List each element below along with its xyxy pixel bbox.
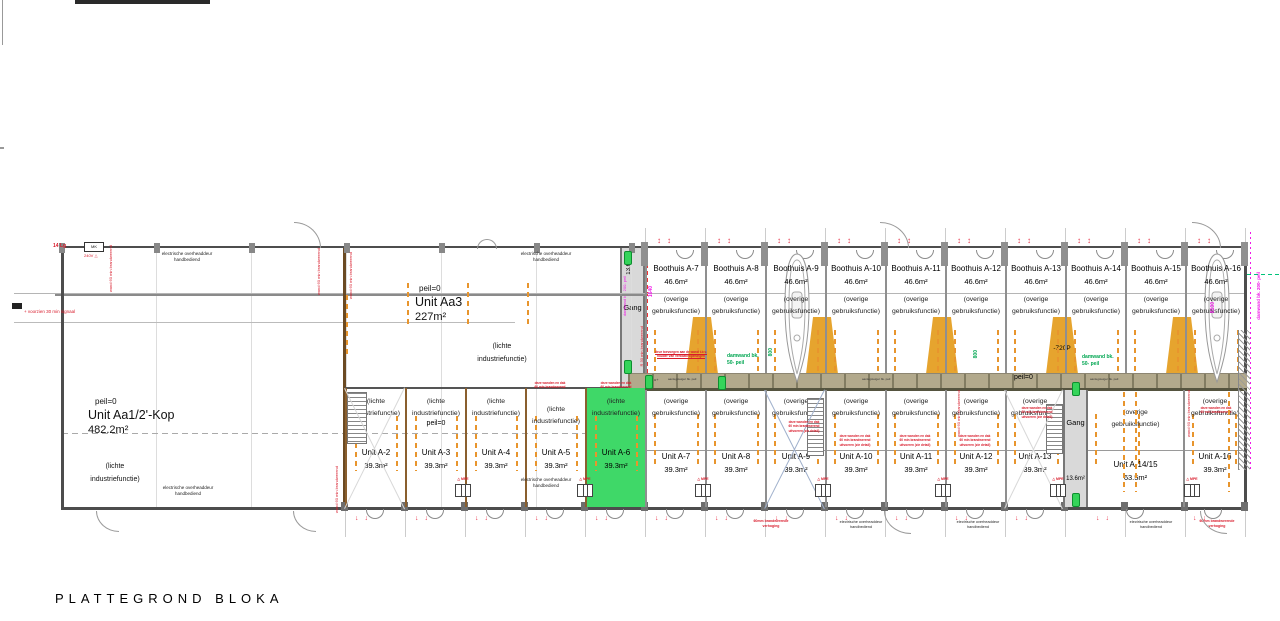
exit-marker — [624, 360, 632, 374]
unit-area: 46.6m² — [827, 277, 885, 286]
door-label-line: handbediend — [1128, 525, 1174, 530]
meter-cabinet-box: MK — [84, 242, 104, 252]
mk-label: MK — [91, 244, 97, 249]
door-swing-arc — [477, 239, 497, 249]
aa3-peil-label: peil=0 — [419, 284, 441, 293]
unit-name: Unit A-11 — [887, 452, 945, 461]
aa3-unit-name: Unit Aa3 — [415, 295, 462, 309]
door-arc-icon — [1096, 250, 1114, 259]
unit-name: Boothuis A-12 — [947, 264, 1005, 273]
aa3-function: (lichte industriefunctie) — [448, 340, 556, 366]
function-line: gebruiksfunctie) — [1007, 306, 1065, 318]
voltage-note: 240V △ — [84, 253, 98, 258]
signal-note: + voorzien 30 min signaal — [24, 309, 75, 314]
unit-function: (overigegebruiksfunctie) — [1067, 294, 1125, 318]
corridor-gang-2: Gang 13.6m² — [1063, 390, 1088, 507]
boathouse-a9: Boothuis A-9 46.6m² (overigegebruiksfunc… — [765, 250, 825, 373]
meter-box — [815, 484, 831, 497]
function-line: gebruiksfunctie) — [647, 408, 705, 420]
fire-wall-note: wand 60 min brandwerend — [348, 252, 353, 299]
damwand-50-note: damwand bk. 50- peil — [727, 353, 759, 367]
overhead-door-label: electrische overheaddeur handbediend — [155, 251, 219, 264]
boathouse-a11: Boothuis A-11 46.6m² (overigegebruiksfun… — [885, 250, 945, 373]
function-line: gebruiksfunctie) — [827, 408, 885, 420]
dim-800: 800 — [973, 350, 979, 358]
door-label-line: handbediend — [955, 525, 1001, 530]
unit-a10: (overigegebruiksfunctie) Unit A-10 39.3m… — [825, 390, 885, 507]
note-line: uitvoeren (zie detail) — [835, 443, 875, 447]
note-line: damwand bk. — [727, 353, 759, 360]
function-line: gebruiksfunctie) — [767, 306, 825, 318]
fire-wall-note: wand 60 min brandwerend — [956, 390, 961, 437]
note-line: 60 min brandwerend — [522, 385, 578, 389]
unit-area: 39.3m² — [767, 465, 825, 474]
mpe-label: △ MPE — [690, 477, 716, 481]
quay-peil-label: peil=0 — [1014, 374, 1033, 381]
unit-function: (overigegebruiksfunctie) — [767, 294, 825, 318]
mpe-label: △ MPE — [810, 477, 836, 481]
exit-marker — [1072, 382, 1080, 396]
unit-function: (overigegebruiksfunctie) — [887, 294, 945, 318]
unit-function: (overigegebruiksfunctie) — [707, 294, 765, 318]
function-line: (overige — [1067, 294, 1125, 306]
unit-name: Boothuis A-15 — [1127, 264, 1185, 273]
unit-name: Boothuis A-9 — [767, 264, 825, 273]
unit-name: Boothuis A-11 — [887, 264, 945, 273]
unit-function: (overigegebruiksfunctie) — [1127, 294, 1185, 318]
unit-function: (lichteindustriefunctie) — [407, 396, 465, 420]
unit-area: 46.6m² — [767, 277, 825, 286]
note-line: 60 min brandwerend — [955, 438, 995, 442]
meter-box — [455, 484, 471, 497]
meter-box — [577, 484, 593, 497]
door-label-line: handbediend — [155, 257, 219, 263]
function-line: (lichte — [587, 396, 645, 408]
function-line: gebruiksfunctie) — [707, 408, 765, 420]
overhead-door-label-below: electrische overheaddeur handbediend — [838, 520, 884, 530]
boat-dim-8100: 8100 — [1210, 302, 1216, 313]
exit-marker — [1072, 493, 1080, 507]
door-arc-icon — [856, 250, 874, 259]
note-line: uitvoeren (zie detail) — [786, 429, 822, 433]
damwand-50-note: damwand bk. 50- peil — [1082, 354, 1114, 368]
overhead-door-label: electrische overheaddeur handbediend — [156, 485, 220, 498]
function-line: gebruiksfunctie) — [827, 306, 885, 318]
dim-1640: 1640 — [648, 286, 654, 297]
door-marker — [467, 283, 469, 328]
unit-function: (overigegebruiksfunctie) — [1187, 294, 1245, 318]
mpe-label: △ MPE — [930, 477, 956, 481]
meter-box — [1184, 484, 1200, 497]
function-line: gebruiksfunctie) — [707, 306, 765, 318]
door-label-line: handbediend — [514, 257, 578, 263]
function-line: (lichte — [448, 340, 556, 353]
note-line: 50- peil — [1082, 361, 1114, 368]
deck-label: aanlegsteiger bk. peil — [668, 377, 696, 381]
fire-note-block: deze wanden en dak 60 min brandwerend ui… — [786, 420, 822, 433]
unit-area: 39.3m² — [347, 461, 405, 470]
floor-plan: 13.6m² Gang damwand bk. 200- peil R 30 m… — [0, 0, 1280, 621]
function-line: industriefunctie) — [448, 353, 556, 366]
function-line: (overige — [827, 396, 885, 408]
unit-function: (lichteindustriefunctie) — [467, 396, 525, 420]
unit-function: (overigegebruiksfunctie) — [707, 396, 765, 420]
unit-function: (overigegebruiksfunctie) — [1007, 294, 1065, 318]
unit-name: Unit A-10 — [827, 452, 885, 461]
unit-name: Boothuis A-10 — [827, 264, 885, 273]
function-line: industriefunctie) — [467, 408, 525, 420]
unit-function: (lichteindustriefunctie) — [587, 396, 645, 420]
unit-area: 39.3m² — [467, 461, 525, 470]
note-line: uitvoeren (zie detail) — [895, 443, 935, 447]
top-border-artifact — [75, 0, 210, 4]
function-line: gebruiksfunctie) — [887, 408, 945, 420]
door-swing-arc — [294, 222, 321, 248]
left-border-artifact — [2, 0, 3, 45]
kop-unit-area: 482.2m² — [88, 424, 128, 436]
function-line: (lichte — [527, 404, 585, 416]
unit-name: Unit A-8 — [707, 452, 765, 461]
deck-label: aanlegsteiger bk. peil — [862, 377, 890, 381]
overhead-door-label: electrische overheaddeur handbediend — [514, 251, 578, 264]
left-border-tick — [0, 147, 4, 149]
note-line: verhoging — [745, 524, 797, 529]
function-line: (overige — [647, 396, 705, 408]
kop-unit-name: Unit Aa1/2'-Kop — [88, 408, 174, 422]
note-line: 60 min brandwerend — [1018, 410, 1056, 414]
door-label-line: handbediend — [514, 483, 578, 489]
function-line: gebruiksfunctie) — [1187, 306, 1245, 318]
fire-wall-note: wand 60 min brandwerend — [1186, 390, 1191, 437]
dim-800: 800 — [768, 348, 774, 356]
exit-marker — [645, 375, 653, 389]
door-arc-icon — [736, 250, 754, 259]
door-swing-arc — [293, 511, 316, 532]
unit-area: 39.3m² — [1185, 465, 1245, 474]
unit-function: (overigegebruiksfunctie) — [827, 396, 885, 420]
function-line: industriefunctie) — [587, 408, 645, 420]
function-line: (overige — [1127, 294, 1185, 306]
door-label-line: handbediend — [838, 525, 884, 530]
unit-a12: (overigegebruiksfunctie) Unit A-12 39.3m… — [945, 390, 1005, 507]
unit-function: (overigegebruiksfunctie) — [827, 294, 885, 318]
kop-peil-label: peil=0 — [95, 397, 117, 406]
wall-notch — [12, 303, 22, 309]
door-swing-arc — [1192, 222, 1221, 248]
function-line: industriefunctie) — [527, 416, 585, 428]
function-line: (overige — [887, 396, 945, 408]
function-line: (overige — [1187, 294, 1245, 306]
unit-name: Unit A-5 — [527, 448, 585, 457]
unit-area: 46.6m² — [707, 277, 765, 286]
unit-name: Unit A-16 — [1185, 452, 1245, 461]
unit-name: Boothuis A-8 — [707, 264, 765, 273]
door-arc-icon — [916, 250, 934, 259]
unit-name: Unit A-7 — [647, 452, 705, 461]
unit-a8: (overigegebruiksfunctie) Unit A-8 39.3m² — [705, 390, 765, 507]
function-line: (overige — [647, 294, 705, 306]
damwand-200-note: damwand bk. 200- peil — [1256, 272, 1261, 320]
boathouse-a10: Boothuis A-10 46.6m² (overigegebruiksfun… — [825, 250, 885, 373]
function-line: gebruiksfunctie) — [887, 306, 945, 318]
unit-area: 39.3m² — [707, 465, 765, 474]
unit-function: (overigegebruiksfunctie) — [647, 396, 705, 420]
function-line: (overige — [827, 294, 885, 306]
deck-label: aanlegsteiger bk. peil — [1090, 377, 1118, 381]
unit-name: Boothuis A-13 — [1007, 264, 1065, 273]
door-marker — [407, 283, 409, 328]
boathouse-a15: Boothuis A-15 46.6m² (overigegebruiksfun… — [1125, 250, 1185, 373]
function-line: gebruiksfunctie) — [1067, 306, 1125, 318]
aa3-unit-area: 227m² — [415, 311, 446, 323]
unit-area: 46.6m² — [1127, 277, 1185, 286]
function-line: gebruiksfunctie) — [947, 306, 1005, 318]
fire-note-block: deze wanden en dak 60 min brandwerend ui… — [835, 434, 875, 447]
fire-wall-note: wand 60 min brandwerend — [334, 466, 339, 513]
function-line: (lichte — [467, 396, 525, 408]
magenta-dim-line — [1250, 232, 1251, 472]
fire-note-block: deze wanden en dak 60 min brandwerend ui… — [1018, 406, 1056, 419]
unit-area: 39.3m² — [887, 465, 945, 474]
mpe-label: △ MPE — [450, 477, 476, 481]
unit-area: 39.3m² — [947, 465, 1005, 474]
door-arc-icon — [1156, 250, 1174, 259]
unit-name: Unit A-3 — [407, 448, 465, 457]
function-line: (overige — [707, 396, 765, 408]
u-plus-mark: u+ — [654, 377, 659, 382]
unit-area: 46.6m² — [1067, 277, 1125, 286]
unit-function: (lichteindustriefunctie) — [527, 404, 585, 428]
unit-area: 46.6m² — [647, 277, 705, 286]
unit-a6-highlighted: (lichteindustriefunctie) Unit A-6 39.3m² — [585, 388, 645, 507]
note-line: 60 min brandwerend — [1196, 410, 1236, 414]
unit-area: 46.6m² — [887, 277, 945, 286]
door-arc-icon — [1036, 250, 1054, 259]
door-swing-arc — [96, 511, 119, 532]
unit-name: Boothuis A-14 — [1067, 264, 1125, 273]
boathouse-a16: Boothuis A-16 46.6m² (overigegebruiksfun… — [1185, 250, 1245, 373]
fire-wall-note: wand 60 min brandwerend — [108, 245, 113, 292]
note-line: 60 min brandwerend — [835, 438, 875, 442]
unit-name: Boothuis A-7 — [647, 264, 705, 273]
function-line: (lichte — [70, 460, 160, 473]
peil-label: peil=0 — [407, 420, 465, 427]
unit-function: (overigegebruiksfunctie) — [887, 396, 945, 420]
note-line: uitvoeren (zie detail) — [955, 443, 995, 447]
fire-banner: deze wanden en dak 60 min brandwerend — [590, 381, 642, 390]
fire-note-block: deze wanden en dak 60 min brandwerend ui… — [895, 434, 935, 447]
fire-banner: deze wanden en dak 60 min brandwerend — [522, 381, 578, 390]
unit-name: Unit A-4 — [467, 448, 525, 457]
meter-box — [1050, 484, 1066, 497]
note-line: damwand bk. — [1082, 354, 1114, 361]
note-line: uitvoeren (zie detail) — [1018, 415, 1056, 419]
mpe-label: △ MPE — [572, 477, 598, 481]
door-swing-arc — [880, 222, 909, 248]
overhead-door-label: electrische overheaddeur handbediend — [514, 477, 578, 490]
below-wall-red-note: 60mm brandwerende verhoging — [745, 519, 797, 528]
note-line: 60 min brandwerend — [786, 424, 822, 428]
function-line: industriefunctie) — [70, 473, 160, 486]
grid-mark-14lg: 14 Lg — [53, 243, 66, 249]
function-line: industriefunctie) — [407, 408, 465, 420]
function-line: (overige — [947, 294, 1005, 306]
note-line: 50- peil — [727, 360, 759, 367]
left-wall — [61, 246, 64, 510]
note-line: houder van ventilatieopeningen — [652, 354, 710, 358]
door-marker — [1135, 392, 1137, 492]
quay-wall-hatch — [1238, 330, 1250, 470]
meter-box — [935, 484, 951, 497]
door-marker — [1228, 392, 1230, 492]
door-arc-icon — [976, 250, 994, 259]
note-line: 60 min brandwerend — [590, 385, 642, 389]
function-line: (overige — [1007, 294, 1065, 306]
door-marker — [1123, 392, 1125, 492]
function-line: gebruiksfunctie) — [647, 306, 705, 318]
exit-marker — [624, 251, 632, 265]
unit-area: 39.3m² — [587, 461, 645, 470]
unit-area: 46.6m² — [1187, 277, 1245, 286]
overhead-door-label-below: electrische overheaddeur handbediend — [955, 520, 1001, 530]
mpe-label: △ MPE — [1179, 477, 1205, 481]
unit-area: 46.6m² — [947, 277, 1005, 286]
unit-area: 39.3m² — [407, 461, 465, 470]
fire-wall-note: wand 60 min brandwerend — [316, 248, 321, 295]
function-line: (lichte — [407, 396, 465, 408]
function-line: (overige — [767, 294, 825, 306]
gang2-label: Gang — [1065, 418, 1086, 427]
door-marker — [527, 283, 529, 328]
meter-box — [695, 484, 711, 497]
unit-area: 39.3m² — [527, 461, 585, 470]
unit-area: 39.3m² — [647, 465, 705, 474]
function-line: (overige — [707, 294, 765, 306]
overhead-door-label-below: electrische overheaddeur handbediend — [1128, 520, 1174, 530]
kop-function: (lichte industriefunctie) — [70, 460, 160, 486]
unit-name: Boothuis A-16 — [1187, 264, 1245, 273]
door-arc-icon — [676, 250, 694, 259]
door-marker — [346, 295, 348, 355]
function-line: (overige — [887, 294, 945, 306]
fire-note-block: deze wanden en dak 60 min brandwerend ui… — [955, 434, 995, 447]
unit-function: (overigegebruiksfunctie) — [647, 294, 705, 318]
fire-note-block: deze wanden en dak 60 min brandwerend — [1196, 406, 1236, 415]
drawing-title: PLATTEGROND BLOKA — [55, 591, 284, 606]
quay-red-note: deur toevoegen aan de wand t.b.v. houder… — [652, 350, 710, 359]
unit-name: Unit A-12 — [947, 452, 1005, 461]
green-dash-line — [1247, 274, 1280, 275]
unit-function: (overigegebruiksfunctie) — [947, 294, 1005, 318]
note-line: 60 min brandwerend — [895, 438, 935, 442]
mpe-label: △ MPE — [1045, 477, 1071, 481]
function-line: gebruiksfunctie) — [1127, 306, 1185, 318]
unit-area: 46.6m² — [1007, 277, 1065, 286]
unit-name: Unit A-6 — [587, 448, 645, 457]
boathouse-a13: Boothuis A-13 46.6m² (overigegebruiksfun… — [1005, 250, 1065, 373]
unit-area: 39.3m² — [1007, 465, 1063, 474]
door-label-line: handbediend — [156, 491, 220, 497]
exit-marker — [718, 376, 726, 390]
unit-area: 39.3m² — [827, 465, 885, 474]
